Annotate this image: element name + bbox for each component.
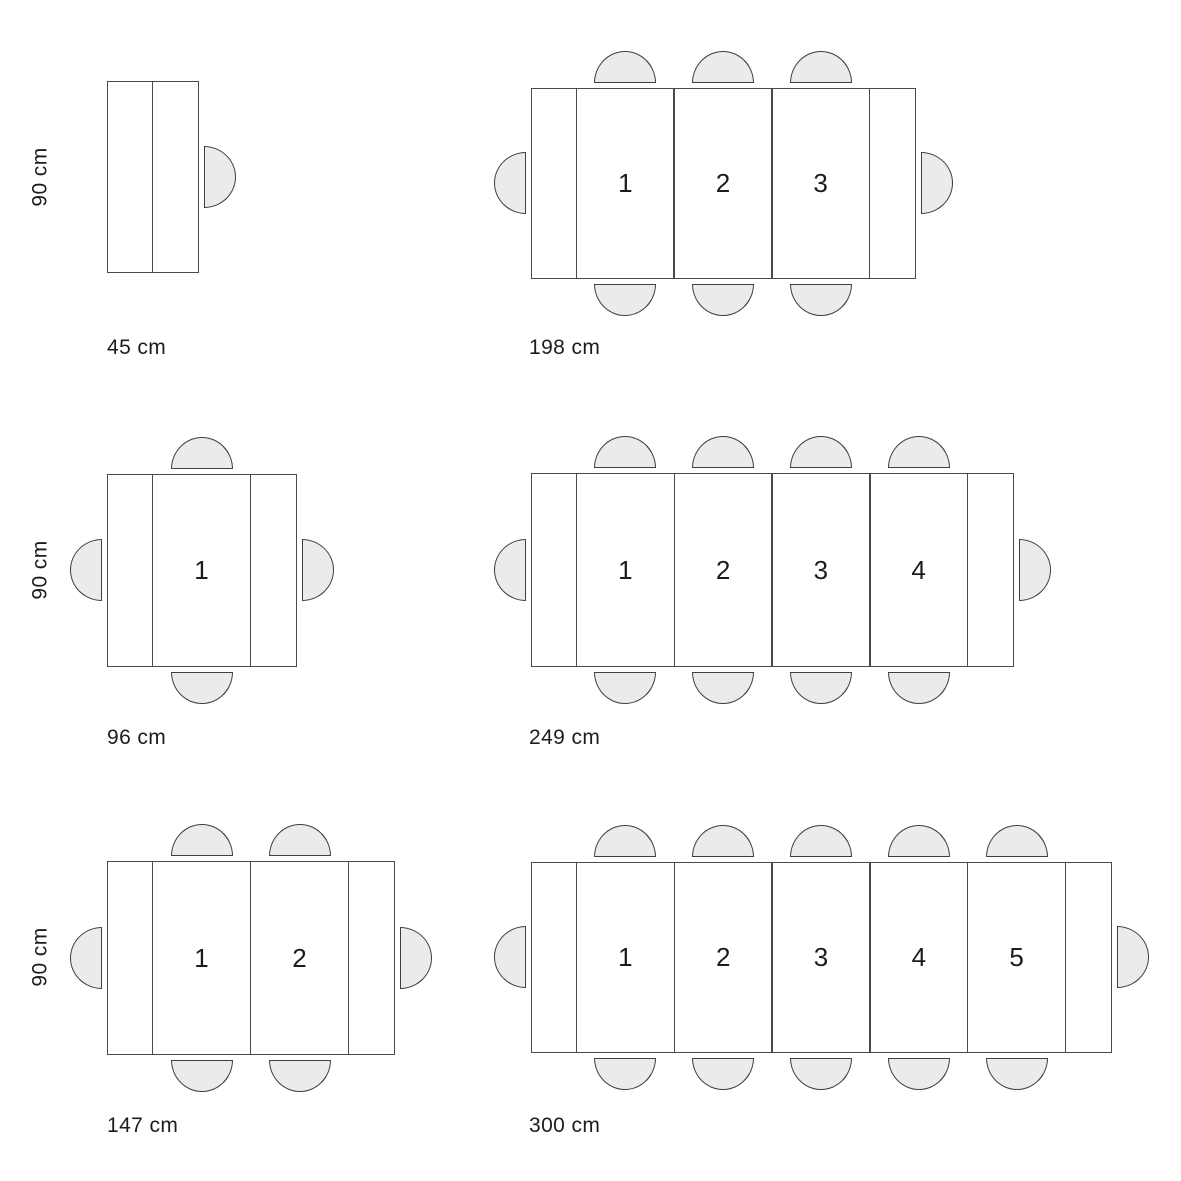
chair-top-2 <box>692 825 754 857</box>
leaf-number-5: 5 <box>1009 944 1023 970</box>
chair-bottom-1 <box>594 1058 656 1090</box>
chair-top-4 <box>888 825 950 857</box>
chair-right <box>204 146 236 208</box>
leaf-divider <box>576 474 578 666</box>
chair-bottom-2 <box>692 284 754 316</box>
leaf-number-1: 1 <box>618 557 632 583</box>
leaf-divider <box>348 862 350 1054</box>
leaf-number-2: 2 <box>292 945 306 971</box>
chair-top-1 <box>171 824 233 856</box>
chair-top-4 <box>888 436 950 468</box>
leaf-number-3: 3 <box>814 944 828 970</box>
depth-label-row1: 90 cm <box>30 147 51 206</box>
leaf-divider <box>771 474 773 666</box>
chair-bottom-3 <box>790 672 852 704</box>
chair-bottom-4 <box>888 1058 950 1090</box>
chair-bottom-1 <box>594 284 656 316</box>
table-size-diagram: 45 cm123198 cm196 cm1234249 cm12147 cm12… <box>0 0 1181 1181</box>
length-label-45cm: 45 cm <box>107 337 166 358</box>
leaf-divider <box>869 89 871 278</box>
leaf-divider <box>869 474 871 666</box>
chair-bottom-4 <box>888 672 950 704</box>
leaf-number-1: 1 <box>194 945 208 971</box>
chair-top-1 <box>594 51 656 83</box>
depth-label-row2: 90 cm <box>30 540 51 599</box>
chair-left <box>494 926 526 988</box>
leaf-number-1: 1 <box>194 557 208 583</box>
chair-top-2 <box>269 824 331 856</box>
chair-top-1 <box>594 825 656 857</box>
leaf-divider <box>250 475 252 666</box>
leaf-number-2: 2 <box>716 557 730 583</box>
chair-top-3 <box>790 51 852 83</box>
chair-bottom-3 <box>790 284 852 316</box>
length-label-147cm: 147 cm <box>107 1115 178 1136</box>
leaf-divider <box>869 863 871 1052</box>
leaf-divider <box>673 89 675 278</box>
leaf-divider <box>674 474 676 666</box>
leaf-number-2: 2 <box>716 944 730 970</box>
leaf-divider <box>967 863 969 1052</box>
leaf-divider <box>576 863 578 1052</box>
chair-bottom-2 <box>692 1058 754 1090</box>
leaf-divider <box>674 863 676 1052</box>
leaf-divider <box>576 89 578 278</box>
leaf-divider <box>152 475 154 666</box>
table-96cm: 1 <box>107 474 297 667</box>
chair-top-5 <box>986 825 1048 857</box>
leaf-number-4: 4 <box>911 557 925 583</box>
leaf-divider <box>771 89 773 278</box>
length-label-249cm: 249 cm <box>529 727 600 748</box>
table-300cm: 12345 <box>531 862 1112 1053</box>
leaf-divider <box>152 82 154 272</box>
length-label-96cm: 96 cm <box>107 727 166 748</box>
chair-bottom-1 <box>594 672 656 704</box>
table-45cm <box>107 81 199 273</box>
chair-top-1 <box>594 436 656 468</box>
chair-bottom-1 <box>171 672 233 704</box>
length-label-198cm: 198 cm <box>529 337 600 358</box>
chair-right <box>400 927 432 989</box>
length-label-300cm: 300 cm <box>529 1115 600 1136</box>
chair-left <box>70 927 102 989</box>
depth-label-row3: 90 cm <box>30 927 51 986</box>
leaf-divider <box>771 863 773 1052</box>
chair-top-3 <box>790 825 852 857</box>
chair-right <box>1019 539 1051 601</box>
leaf-number-1: 1 <box>618 170 632 196</box>
table-249cm: 1234 <box>531 473 1014 667</box>
chair-bottom-2 <box>692 672 754 704</box>
leaf-number-2: 2 <box>716 170 730 196</box>
leaf-number-4: 4 <box>912 944 926 970</box>
leaf-divider <box>152 862 154 1054</box>
chair-top-1 <box>171 437 233 469</box>
chair-right <box>921 152 953 214</box>
chair-bottom-1 <box>171 1060 233 1092</box>
chair-left <box>70 539 102 601</box>
chair-bottom-3 <box>790 1058 852 1090</box>
leaf-divider <box>1065 863 1067 1052</box>
chair-top-2 <box>692 51 754 83</box>
leaf-number-3: 3 <box>814 557 828 583</box>
chair-top-3 <box>790 436 852 468</box>
leaf-divider <box>967 474 969 666</box>
chair-bottom-5 <box>986 1058 1048 1090</box>
chair-right <box>302 539 334 601</box>
table-198cm: 123 <box>531 88 916 279</box>
table-147cm: 12 <box>107 861 395 1055</box>
chair-bottom-2 <box>269 1060 331 1092</box>
chair-right <box>1117 926 1149 988</box>
chair-left <box>494 539 526 601</box>
leaf-divider <box>250 862 252 1054</box>
chair-left <box>494 152 526 214</box>
leaf-number-1: 1 <box>618 944 632 970</box>
chair-top-2 <box>692 436 754 468</box>
leaf-number-3: 3 <box>813 170 827 196</box>
